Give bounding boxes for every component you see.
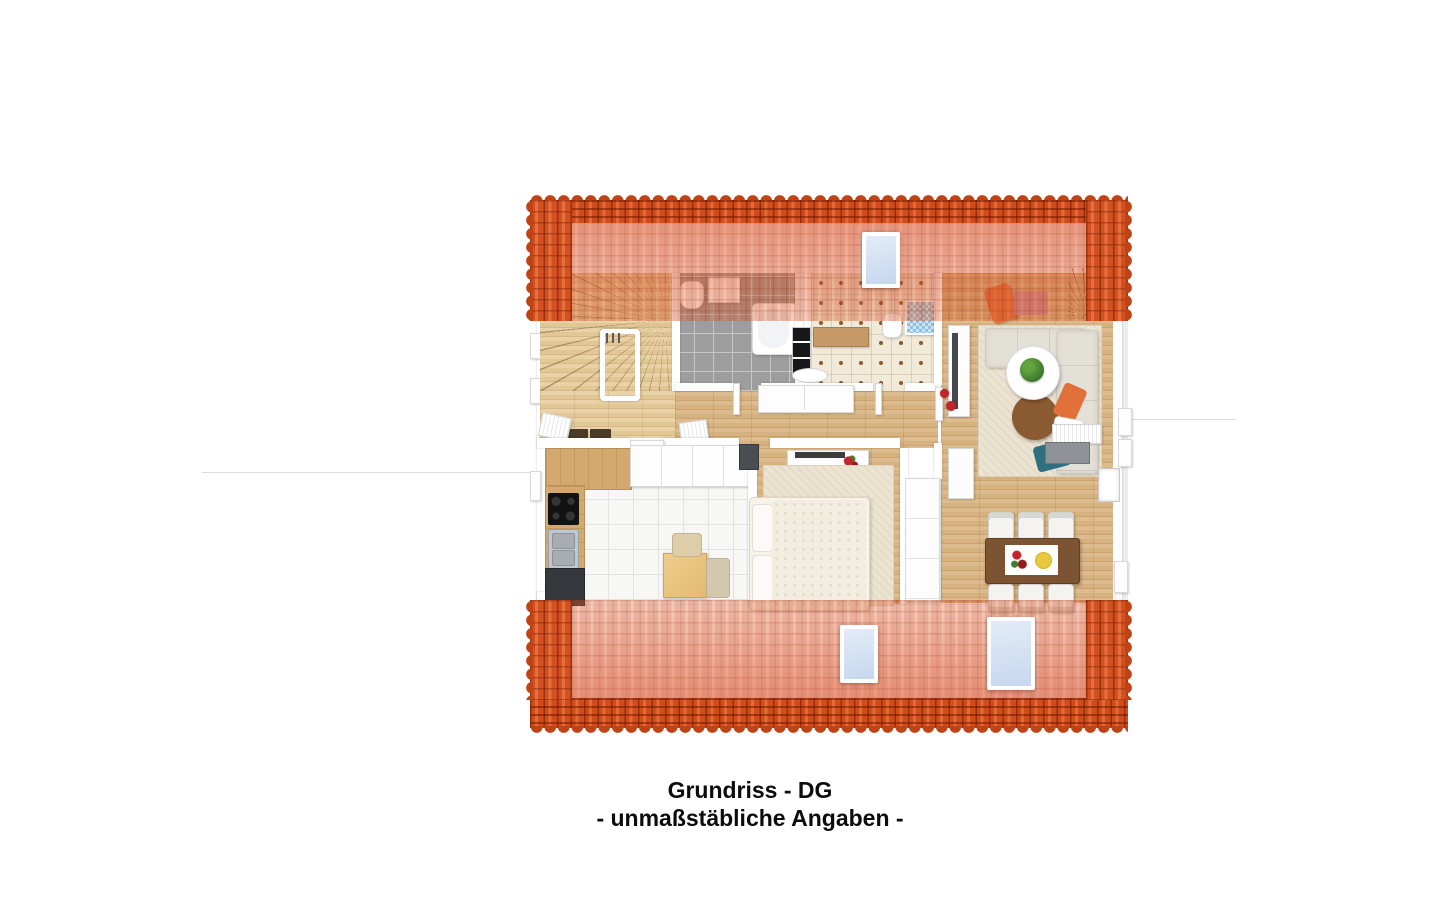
dresser-tv-bar [795,452,845,458]
caption-title: Grundriss - DG [430,776,1070,804]
tv-screen [952,333,958,409]
skylight-top [862,232,900,288]
kitchen-chair-1 [672,533,702,557]
roof-top-veil [570,222,1086,321]
kitchen-counter-top [545,448,632,490]
dining-chair-top-2 [1018,512,1044,541]
bathroom1-door [733,383,740,415]
potted-plant [1020,358,1044,382]
window-right-2 [1118,439,1132,467]
roof-top-left-solid [530,200,572,321]
roof-bottom-left-edge-tiles [524,600,533,700]
hallway-sideboard [758,385,854,413]
sink-basin-1 [552,533,575,549]
roof-top-ridge [530,200,1128,223]
floorplan [530,193,1128,738]
stair-railing-balusters [606,333,624,343]
bath-mat-oval [792,368,828,383]
page: { "caption": { "line1": "Grundriss - DG"… [0,0,1440,900]
kitchen-chair-2 [706,558,730,598]
bed-pillow-1 [752,504,773,552]
dining-chair-top-1 [988,512,1014,541]
chimney-block [1098,468,1120,502]
wall-hall-living-bottom [934,443,942,479]
roof-bottom-right-edge-tiles [1125,600,1134,700]
sink-basin-2 [552,550,575,566]
dining-flowers [1008,546,1030,572]
left-reference-line [202,472,543,473]
roof-bottom-left-solid [530,600,572,700]
wardrobe [905,478,940,602]
window-left-3 [530,471,541,501]
window-right-3 [1114,561,1128,593]
window-right-1 [1118,408,1132,436]
skylight-bottom-large [987,617,1035,690]
yellow-plate [1035,552,1052,569]
caption-subtitle: - unmaßstäbliche Angaben - [430,804,1070,832]
roof-bottom-edge-tiles [530,726,1128,735]
caption: Grundriss - DG - unmaßstäbliche Angaben … [430,776,1070,832]
vanity-counter [813,327,869,347]
dining-chair-top-3 [1048,512,1074,541]
bedroom-door-panel [739,444,759,470]
sideboard-seam [804,386,805,410]
flower-red-2 [946,401,956,411]
kitchen-table [663,553,707,598]
roof-bottom-right-solid [1086,600,1128,700]
wall-hall-kitchen-a [537,438,630,448]
dining-cabinet [948,448,974,499]
cooktop [548,493,579,525]
roof-top-left-edge-tiles [524,200,533,321]
bathroom2-door [875,383,882,415]
bed-duvet [772,500,866,607]
gray-door-panel [1045,442,1090,464]
right-reference-line [1117,419,1236,420]
bed-pillow-2 [752,555,773,603]
wall-bath-bottom-a [675,383,733,391]
wall-hall-bedroom [770,438,900,448]
radiator-living [1052,424,1102,444]
roof-top-right-solid [1086,200,1128,321]
roof-top-right-edge-tiles [1125,200,1134,321]
skylight-bottom-small [840,625,878,683]
flower-red-1 [940,389,949,398]
wall-bath-bottom-c [905,383,935,391]
roof-bottom-eave [530,698,1128,728]
